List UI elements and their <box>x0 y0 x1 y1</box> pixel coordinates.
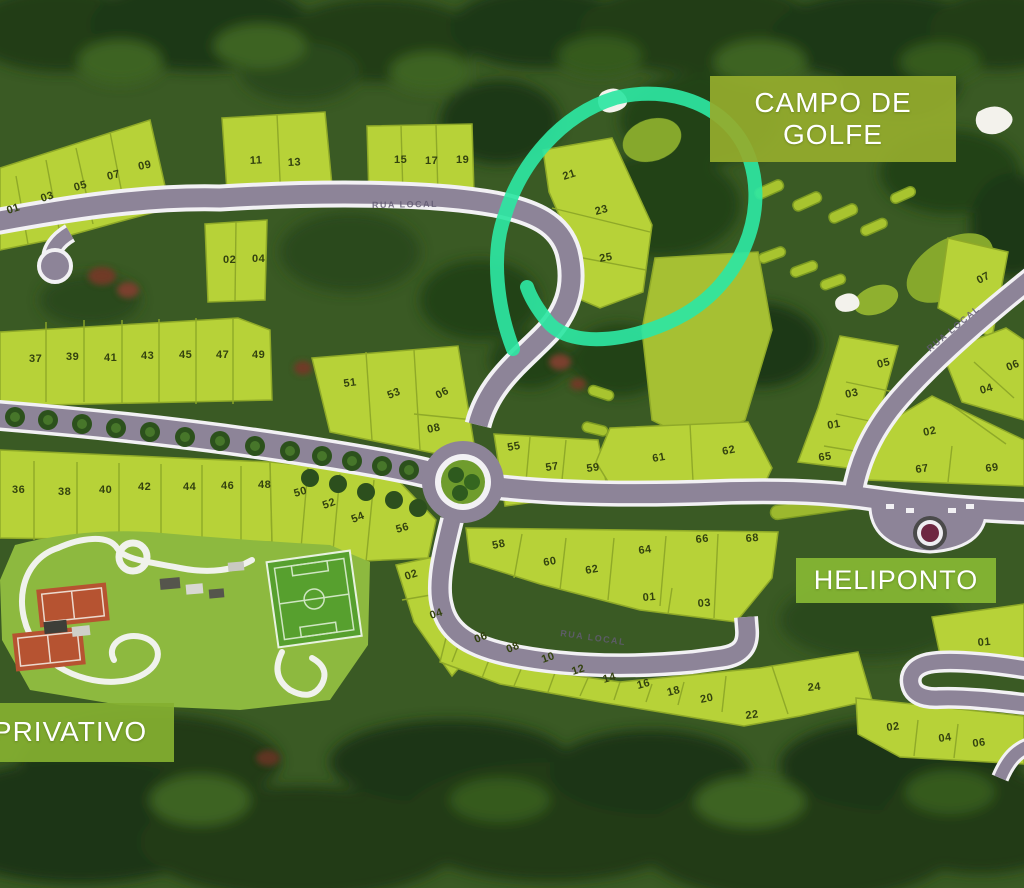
lot-number-22: 22 <box>745 708 760 722</box>
lot-number-01: 01 <box>826 418 841 432</box>
lot-number-45: 45 <box>179 349 192 361</box>
lot-number-39: 39 <box>66 351 79 363</box>
lot-number-17: 17 <box>425 155 438 167</box>
helipad-label: HELIPONTO <box>796 558 996 603</box>
lot-number-61: 61 <box>651 451 666 465</box>
lot-number-01: 01 <box>977 636 991 649</box>
lot-number-40: 40 <box>99 484 112 496</box>
lot-number-67: 67 <box>915 462 930 476</box>
lot-number-55: 55 <box>506 440 521 454</box>
helipad-label-text: HELIPONTO <box>814 565 979 596</box>
lot-number-42: 42 <box>138 481 151 493</box>
lot-number-03: 03 <box>697 597 711 610</box>
lot-number-02: 02 <box>886 720 901 734</box>
lot-number-19: 19 <box>456 154 469 166</box>
lot-number-69: 69 <box>985 461 1000 475</box>
lot-number-37: 37 <box>29 353 42 365</box>
lot-number-15: 15 <box>394 154 407 166</box>
lot-number-65: 65 <box>818 450 833 464</box>
lot-number-38: 38 <box>58 486 71 498</box>
lot-number-13: 13 <box>288 156 302 169</box>
lot-number-47: 47 <box>216 349 229 361</box>
tennis-court <box>36 582 110 627</box>
lot-number-11: 11 <box>250 154 263 167</box>
club-area <box>0 531 370 710</box>
private-area-label-text: PRIVATIVO <box>0 716 147 748</box>
lot-number-51: 51 <box>343 376 358 390</box>
lot-number-57: 57 <box>545 460 560 474</box>
parcel-block-36-48 <box>0 450 272 542</box>
lot-number-68: 68 <box>745 532 759 545</box>
lot-number-43: 43 <box>141 350 154 362</box>
lot-number-06: 06 <box>972 736 987 750</box>
lot-number-01: 01 <box>642 591 656 604</box>
soccer-field <box>267 551 362 648</box>
lot-number-49: 49 <box>252 349 265 361</box>
road-name: RUA LOCAL <box>372 199 438 210</box>
lot-number-62: 62 <box>584 563 599 577</box>
lot-number-04: 04 <box>938 731 953 745</box>
roundabout <box>422 441 504 523</box>
lot-number-25: 25 <box>598 251 613 265</box>
lot-number-02: 02 <box>223 254 236 266</box>
masterplan-map: RUA LOCAL RUA LOCAL RUA LOCAL 0103050709… <box>0 0 1024 888</box>
golf-course-label: CAMPO DE GOLFE <box>710 76 956 162</box>
golf-course-label-line1: CAMPO DE <box>754 87 911 119</box>
lot-number-36: 36 <box>12 484 25 496</box>
private-area-label: PRIVATIVO <box>0 703 174 762</box>
lot-number-44: 44 <box>183 481 197 493</box>
lot-number-04: 04 <box>252 253 266 265</box>
lot-number-41: 41 <box>104 352 117 364</box>
lot-number-24: 24 <box>807 681 822 694</box>
lot-number-66: 66 <box>695 533 709 546</box>
cul-de-sac <box>39 250 71 282</box>
lot-number-64: 64 <box>638 543 653 557</box>
lot-number-59: 59 <box>586 461 601 475</box>
lot-number-46: 46 <box>221 480 234 492</box>
lot-number-48: 48 <box>258 479 271 491</box>
lot-number-60: 60 <box>542 555 557 569</box>
golf-course-label-line2: GOLFE <box>783 119 883 151</box>
